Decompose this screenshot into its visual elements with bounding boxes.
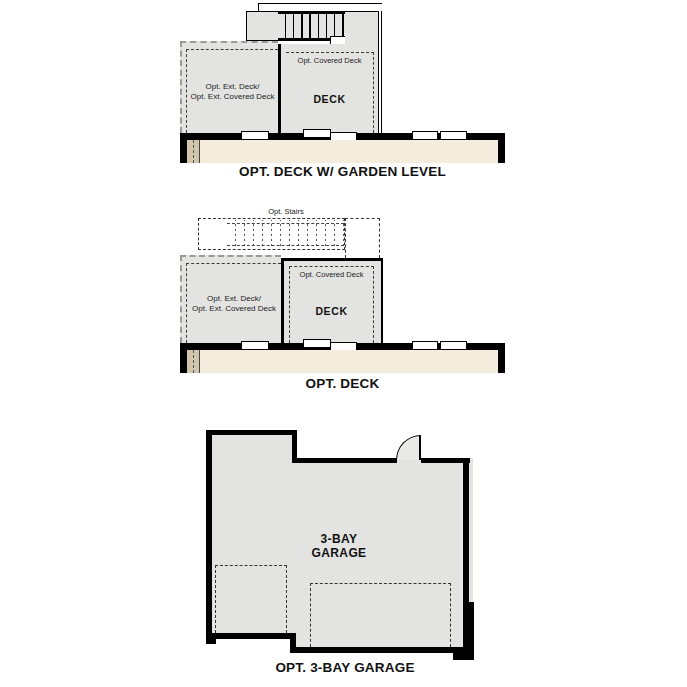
window-opening <box>412 131 438 140</box>
left-optional-deck-outline: Opt. Ext. Deck/ Opt. Ext. Covered Deck <box>186 263 281 343</box>
sliding-door-opening-left <box>303 339 331 348</box>
garage-wall-bottom-main <box>290 647 474 653</box>
garage-wall-bottom-left <box>206 633 296 639</box>
garage-wall-corner-br <box>453 647 474 660</box>
garage-wall-right-upper <box>463 458 469 602</box>
wall-end-right <box>498 133 505 163</box>
opt-stair-bottom-dash <box>227 245 344 246</box>
window-opening <box>241 131 269 140</box>
caption-garden-level: OPT. DECK W/ GARDEN LEVEL <box>180 164 505 179</box>
garage-wall-top-main-a <box>292 458 397 463</box>
garage-bay-outline-left <box>215 565 287 633</box>
left-deck-label-line1: Opt. Ext. Deck/ <box>207 294 261 304</box>
caption-garage: OPT. 3-BAY GARAGE <box>180 660 510 675</box>
wall-end-left <box>180 133 187 163</box>
window-opening <box>412 341 438 350</box>
covered-deck-label: Opt. Covered Deck <box>298 56 362 65</box>
garage-room-label-line1: 3-BAY <box>239 532 439 546</box>
garden-level-stair-dash <box>193 140 194 163</box>
wall-end-right <box>498 343 505 373</box>
lower-level-strip <box>187 350 498 373</box>
diagram-garden-level: Opt. Ext. Deck/ Opt. Ext. Covered Deck O… <box>180 0 505 195</box>
opt-upper-landing-outline <box>345 218 380 258</box>
garage-room-label: 3-BAY GARAGE <box>239 532 439 560</box>
garage-wall-left <box>206 430 212 644</box>
diagram-garage: 3-BAY GARAGE OPT. 3-BAY GARAGE <box>180 425 510 687</box>
left-deck-label-line2: Opt. Ext. Covered Deck <box>192 304 276 314</box>
garage-room-label-line2: GARAGE <box>239 546 439 560</box>
covered-deck-label: Opt. Covered Deck <box>300 270 364 279</box>
opt-stairs-label: Opt. Stairs <box>227 207 345 216</box>
left-deck-label-line1: Opt. Ext. Deck/ <box>206 82 260 92</box>
window-opening <box>241 341 269 350</box>
garden-level-stair-cell <box>187 140 200 163</box>
sliding-door-opening-left <box>303 129 331 138</box>
garden-level-strip <box>187 140 498 163</box>
window-opening <box>440 131 467 140</box>
garage-wall-step-bottom <box>290 633 296 653</box>
upper-floor-edge <box>258 3 382 4</box>
lower-level-stair-dash <box>193 350 194 373</box>
covered-deck-outline: Opt. Covered Deck DECK <box>289 266 374 343</box>
window-opening <box>440 341 467 350</box>
floorplan-sheet: Opt. Ext. Deck/ Opt. Ext. Covered Deck O… <box>0 0 687 687</box>
garage-wall-corner-bl <box>206 633 216 644</box>
entry-door-swing <box>396 435 421 460</box>
lower-level-stair-cell <box>187 350 200 373</box>
deck-right-double-edge <box>378 11 382 133</box>
caption-opt-deck: OPT. DECK <box>180 376 505 391</box>
deck-label: DECK <box>313 93 345 105</box>
stair-landing <box>246 11 279 41</box>
opt-stair-top-dash <box>227 223 344 224</box>
wall-end-left <box>180 343 187 373</box>
left-optional-deck-outline: Opt. Ext. Deck/ Opt. Ext. Covered Deck <box>186 49 278 133</box>
covered-deck-outline: Opt. Covered Deck DECK <box>286 52 374 133</box>
left-deck-label-line2: Opt. Ext. Covered Deck <box>190 92 274 102</box>
garage-bay-outline-right <box>310 583 451 647</box>
garage-wall-top-left <box>206 430 297 435</box>
diagram-opt-deck: Opt. Stairs Opt. Ext. Deck/ Opt. Ext. Co… <box>180 205 505 400</box>
deck-label: DECK <box>315 305 347 317</box>
